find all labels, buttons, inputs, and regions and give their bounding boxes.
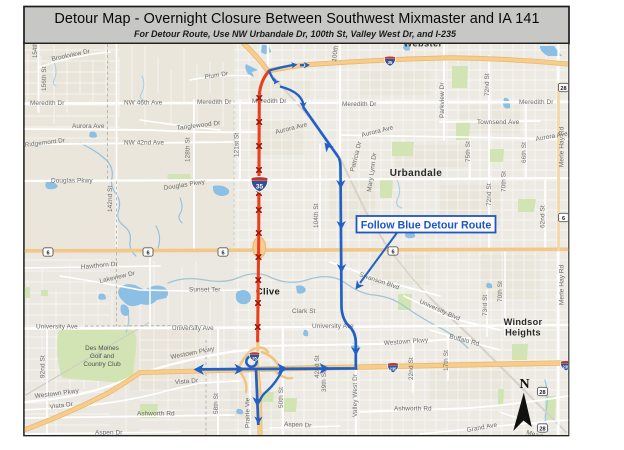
svg-text:NW 42nd Ave: NW 42nd Ave: [124, 140, 164, 147]
svg-text:Heights: Heights: [505, 328, 541, 338]
svg-text:Follow Blue Detour Route: Follow Blue Detour Route: [361, 220, 492, 232]
svg-text:28: 28: [539, 426, 545, 432]
svg-text:62nd St: 62nd St: [540, 205, 547, 228]
svg-text:University Ave: University Ave: [36, 324, 78, 331]
svg-text:58th St: 58th St: [213, 393, 220, 414]
svg-text:22nd St: 22nd St: [408, 357, 415, 380]
svg-text:73rd St: 73rd St: [482, 295, 489, 316]
svg-text:42nd St: 42nd St: [314, 355, 321, 378]
svg-text:Ashworth Rd: Ashworth Rd: [137, 411, 175, 418]
svg-text:156th St: 156th St: [41, 66, 48, 91]
svg-text:Meredith Dr: Meredith Dr: [519, 99, 554, 106]
svg-text:Aspen Dr: Aspen Dr: [284, 421, 313, 429]
svg-text:Detour Map - Overnight Closure: Detour Map - Overnight Closure Between S…: [54, 11, 539, 27]
svg-text:Douglas Pkwy: Douglas Pkwy: [51, 178, 93, 185]
svg-text:142nd St: 142nd St: [107, 185, 114, 212]
svg-text:121st St: 121st St: [234, 133, 241, 157]
svg-text:Urbandale: Urbandale: [390, 168, 443, 179]
svg-text:Windsor: Windsor: [504, 317, 543, 327]
svg-text:35: 35: [388, 60, 393, 65]
svg-text:6: 6: [391, 249, 394, 255]
svg-text:Merle Hay Rd: Merle Hay Rd: [559, 126, 566, 167]
svg-text:35: 35: [256, 184, 264, 191]
svg-text:28: 28: [560, 86, 566, 92]
svg-text:Meredith Dr: Meredith Dr: [342, 101, 377, 108]
svg-text:Golf and: Golf and: [90, 353, 115, 360]
svg-text:Valley West Dr: Valley West Dr: [352, 373, 359, 417]
svg-text:50th St: 50th St: [278, 387, 285, 408]
svg-text:Des Moines: Des Moines: [85, 345, 119, 352]
svg-text:72nd St: 72nd St: [484, 73, 491, 96]
svg-text:Meredith Dr: Meredith Dr: [30, 100, 65, 107]
svg-text:39th St: 39th St: [321, 371, 328, 392]
svg-text:Ashworth Rd: Ashworth Rd: [394, 406, 432, 413]
svg-text:N: N: [519, 377, 529, 392]
svg-text:6: 6: [562, 216, 565, 222]
svg-text:6: 6: [46, 250, 49, 256]
svg-text:University Ave: University Ave: [172, 325, 214, 332]
svg-text:Country Club: Country Club: [83, 361, 121, 368]
svg-text:Clark St: Clark St: [292, 308, 316, 315]
svg-text:NW 46th Ave: NW 46th Ave: [124, 100, 163, 107]
svg-text:Prairie Vie: Prairie Vie: [245, 397, 252, 428]
svg-text:66th St: 66th St: [521, 142, 528, 163]
svg-text:75th St: 75th St: [465, 141, 472, 162]
svg-text:104th St: 104th St: [313, 203, 320, 228]
svg-text:17th St: 17th St: [443, 350, 450, 371]
svg-text:6: 6: [146, 250, 149, 256]
svg-text:Parkview Dr: Parkview Dr: [439, 82, 446, 118]
svg-text:Merle Hay Rd: Merle Hay Rd: [559, 264, 566, 305]
svg-text:Townsend Ave: Townsend Ave: [477, 119, 520, 126]
svg-text:Sunset Ter: Sunset Ter: [189, 287, 221, 294]
svg-text:72nd St: 72nd St: [486, 183, 493, 206]
svg-text:70th St: 70th St: [497, 281, 504, 302]
svg-text:92nd St: 92nd St: [40, 355, 47, 378]
svg-text:For Detour Route, Use NW Urban: For Detour Route, Use NW Urbandale Dr, 1…: [134, 29, 457, 39]
svg-text:70th St: 70th St: [501, 171, 508, 192]
svg-text:235: 235: [389, 367, 397, 372]
svg-text:28: 28: [539, 390, 545, 396]
svg-text:Aurora Ave: Aurora Ave: [72, 123, 105, 130]
svg-text:6: 6: [221, 250, 224, 256]
svg-text:Meredith Dr: Meredith Dr: [197, 99, 232, 106]
svg-text:128th St: 128th St: [185, 137, 192, 162]
svg-text:35: 35: [252, 355, 257, 360]
